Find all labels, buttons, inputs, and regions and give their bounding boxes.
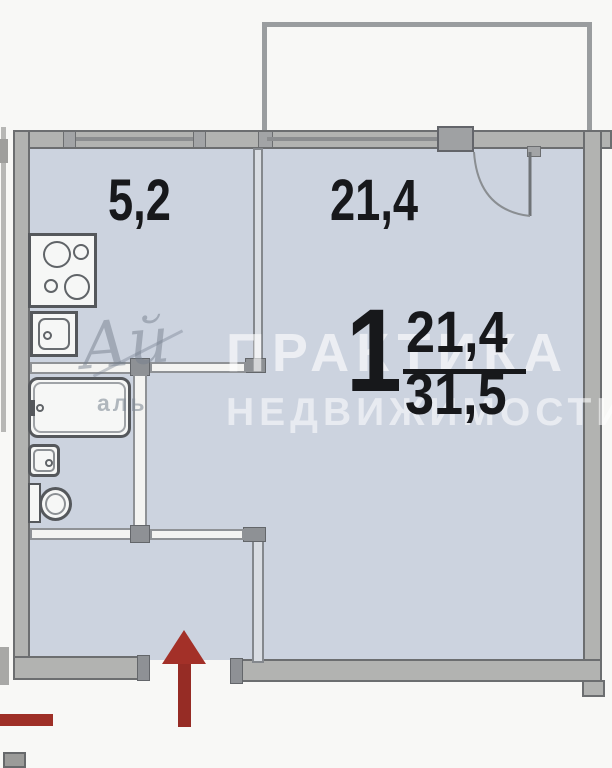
- hallway-doorway: [150, 529, 244, 540]
- kitchen-window-jamb-right: [193, 131, 206, 148]
- neighbor-wall-line: [1, 127, 6, 432]
- adjacent-plan-fragment: [3, 752, 26, 768]
- entrance-jamb-right: [230, 658, 243, 684]
- partition-hall-room: [252, 528, 264, 663]
- stove-icon: [28, 233, 97, 308]
- entrance-arrow-icon: [162, 630, 206, 664]
- wall-bottom-right: [232, 659, 602, 682]
- balcony-outline-left: [262, 22, 267, 130]
- door-swing-arc-icon: [465, 146, 537, 224]
- kitchen-area-label: 5,2: [108, 172, 189, 230]
- entrance-jamb-left: [137, 655, 150, 681]
- watermark-logo-caption: аль: [97, 392, 148, 415]
- partition-hall-room-cap: [243, 527, 266, 542]
- bathtub-faucet-icon: [30, 400, 35, 416]
- balcony-outline-top: [262, 22, 592, 27]
- neighbor-wall-corner: [0, 647, 9, 685]
- floor-plan: Ай аль ПРАКТИКА НЕДВИЖИМОСТИ 5,2 21,4 1 …: [0, 0, 612, 768]
- entrance-arrow-shaft: [178, 660, 191, 727]
- room-window-icon: [267, 137, 437, 141]
- living-room-area-label: 21,4: [330, 172, 443, 230]
- rooms-count-label: 1: [346, 292, 412, 410]
- kitchen-window-icon: [76, 137, 193, 141]
- neighbor-wall-tick: [0, 139, 8, 163]
- kitchen-window-jamb-left: [63, 131, 76, 148]
- toilet-bowl-icon: [39, 487, 72, 521]
- red-edge-line: [0, 714, 53, 726]
- bathtub-faucet-knob: [36, 404, 44, 412]
- wall-corner-notch: [582, 680, 605, 697]
- living-area-numerator: 21,4: [406, 304, 519, 362]
- total-area-denominator: 31,5: [405, 366, 518, 424]
- balcony-outline-right: [587, 22, 592, 138]
- bathroom-wall-bottom-cap: [130, 525, 150, 543]
- wall-bottom-left: [13, 656, 148, 680]
- kitchen-sink-icon: [30, 311, 78, 357]
- bathroom-wall-bottom: [30, 528, 134, 540]
- washbasin-icon: [28, 444, 60, 477]
